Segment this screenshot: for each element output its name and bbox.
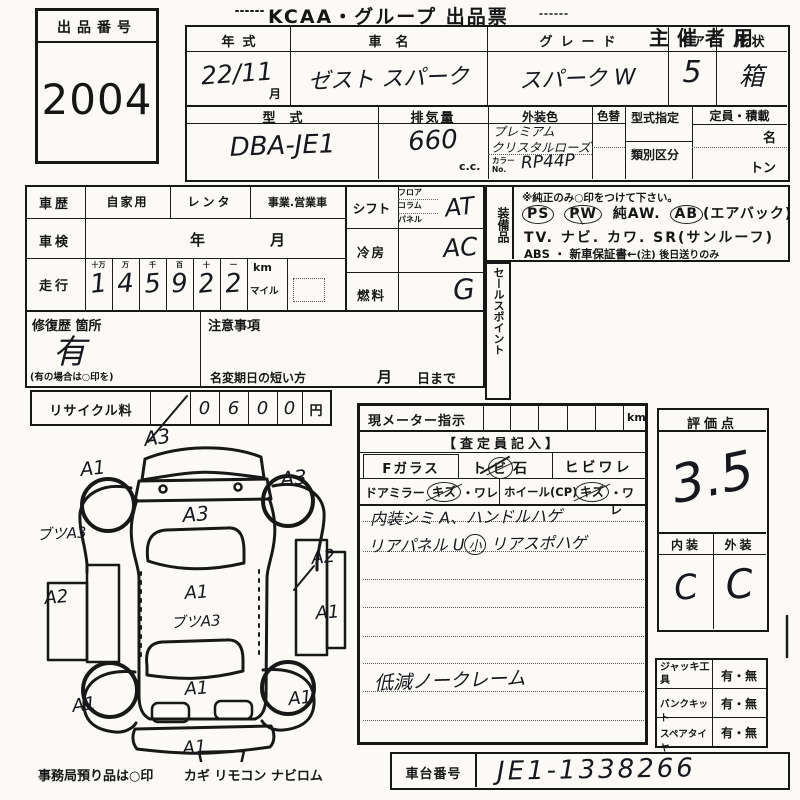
cooling-value: AC <box>442 232 479 263</box>
history-rental: レンタ <box>170 193 250 210</box>
divider <box>623 406 624 430</box>
fuel-label: 燃料 <box>345 285 398 304</box>
model-value: DBA-JE1 <box>187 128 379 165</box>
jack-value: 有・無 <box>712 667 766 684</box>
name-change-month: 月 <box>377 366 392 387</box>
capacity-label: 定員・積載 <box>692 107 787 124</box>
cooling-label: 冷房 <box>345 242 398 261</box>
mileage-digit-1: 4 <box>111 268 140 300</box>
wiper-pivot-left <box>160 486 167 493</box>
wheel-kizu: キズ <box>575 482 609 502</box>
divider <box>538 406 539 430</box>
auction-sheet: 出品番号 2004 KCAA・グループ 出品票 主催者用 年式 車名 グレード … <box>0 0 800 800</box>
divider <box>595 406 596 430</box>
mirror-kizu: キズ <box>427 482 461 502</box>
damage-label-13: A1 <box>181 736 207 759</box>
shift-positions: フロア コラム パネル <box>398 187 438 227</box>
doors-value: 5 <box>668 55 716 90</box>
vehicle-table: 年式 車名 グレード ドア 形状 22/11 月 ゼスト スパーク スパーク W… <box>185 25 790 182</box>
equipment-line3: ABS ・ 新車保証書←(注) 後日送りのみ <box>524 246 719 262</box>
puncture-kit-label: パンクキット <box>660 696 712 724</box>
divider <box>659 554 766 555</box>
divider <box>592 147 625 148</box>
damage-label-1: A1 <box>77 456 106 481</box>
mileage-checkbox <box>293 278 325 302</box>
damage-label-7: A1 <box>314 601 340 624</box>
puncture-kit-value: 有・無 <box>712 695 766 712</box>
color-no-value: RP44P <box>521 151 576 174</box>
divider <box>510 406 511 430</box>
name-change-label: 名変期日の短い方 <box>210 369 306 386</box>
repair-value: 有 <box>53 325 86 373</box>
type-designation-label: 型式指定 <box>631 109 679 126</box>
divider <box>363 636 644 637</box>
damage-label-6: A2 <box>309 546 336 569</box>
divider <box>25 258 345 259</box>
mileage-unit-mile: マイル <box>250 283 279 297</box>
spare-tire-value: 有・無 <box>712 724 766 741</box>
mileage-digit-0: 1 <box>84 268 114 301</box>
inspection-label: 車検 <box>25 231 85 250</box>
mileage-digit-4: 2 <box>192 268 222 301</box>
divider <box>363 720 644 721</box>
damage-label-4: ブツA3 <box>36 523 87 544</box>
side-panel-left-inner <box>87 565 119 662</box>
score-value: 3.5 <box>654 438 771 519</box>
damage-label-2: A3 <box>277 465 307 491</box>
equipment-line1: PS PW 純AW. AB(エアバック) <box>522 203 792 224</box>
year-label: 年式 <box>187 31 290 50</box>
classification-label: 類別区分 <box>631 146 679 163</box>
exhibit-number-value: 2004 <box>38 75 156 124</box>
divider <box>360 430 645 432</box>
rear-window-shape <box>147 640 243 678</box>
mileage-digit-2: 5 <box>138 268 168 300</box>
damage-label-9: ブツA3 <box>170 611 221 632</box>
exterior-label: 外装 <box>713 536 766 553</box>
damage-label-12: A1 <box>286 687 313 710</box>
front-bumper-shape <box>142 448 264 480</box>
mileage-label: 走行 <box>25 275 85 294</box>
exterior-grade: C <box>711 559 769 610</box>
divider <box>475 754 477 787</box>
damage-label-3: A3 <box>180 501 210 527</box>
wiper-pivot-right <box>235 484 242 491</box>
crack-cell: ヒビワレ <box>552 457 645 477</box>
damage-label-0: A3 <box>140 424 171 452</box>
equipment-line2: TV. ナビ. カワ. SR(サンルーフ) <box>524 227 774 247</box>
divider <box>363 579 644 580</box>
divider <box>692 147 787 148</box>
shift-value: AT <box>444 192 476 223</box>
sales-point-strip: セールスポイント <box>485 262 511 400</box>
equipment-aw: 純AW. <box>613 206 661 222</box>
equipment-ab: AB <box>670 205 704 224</box>
color-no-label: カラーNo. <box>492 156 515 174</box>
capacity-persons-unit: 名 <box>692 127 776 146</box>
divider <box>363 607 644 608</box>
divider <box>345 228 485 229</box>
office-keep-note: 事務局預り品は○印 <box>38 769 153 784</box>
accessories-box: ジャッキ工具 有・無 パンクキット 有・無 スペアタイヤ 有・無 <box>655 658 768 748</box>
caution-label: 注意事項 <box>208 315 260 334</box>
divider <box>499 478 500 504</box>
mirror-ware: ・ワレ <box>462 484 498 501</box>
assessor-header: 【査定員記入】 <box>360 433 645 452</box>
divider <box>692 124 787 125</box>
divider <box>483 406 484 430</box>
assessor-note-1: 内装シミ A、ハンドルハゲ <box>370 502 562 529</box>
mileage-digit-3: 9 <box>165 268 194 299</box>
divider <box>567 406 568 430</box>
history-label: 車歴 <box>25 193 85 212</box>
shape-value: 箱 <box>716 57 787 93</box>
windshield-shape <box>147 528 244 569</box>
cowl-shape <box>135 479 271 501</box>
sales-point-label: セールスポイント <box>490 267 506 395</box>
model-label: 型式 <box>187 107 378 126</box>
divider <box>287 258 288 310</box>
score-box: 評価点 3.5 内装 外装 C C <box>657 408 769 632</box>
inspection-month-unit: 月 <box>270 229 285 250</box>
status-table: 車歴 自家用 レンタ 事業.営業車 シフト フロア コラム パネル AT 車検 … <box>25 185 485 430</box>
grade-value: スパーク W <box>486 58 668 96</box>
mirror-label: ドアミラー <box>365 484 425 501</box>
equipment-box: 装備品 ※純正のみ○印をつけて下さい。 PS PW 純AW. AB(エアバック)… <box>485 185 790 262</box>
doors-label: ドア <box>668 31 716 50</box>
color-change-label: 色替 <box>592 108 625 124</box>
equipment-ps: PS <box>522 205 554 224</box>
assessment-box: 現メーター指示 km 【査定員記入】 Fガラス トビ石 ヒビワレ ドアミラー キ… <box>357 403 648 745</box>
damage-label-11: A1 <box>70 693 97 717</box>
divider <box>659 430 766 432</box>
car-name-value: ゼスト スパーク <box>290 58 488 97</box>
divider <box>625 141 692 142</box>
assessor-note-3: 低減ノークレーム <box>374 663 526 695</box>
fuel-value: G <box>452 272 476 306</box>
wheel-label: ホイール(CP) <box>504 484 577 500</box>
rear-light-right <box>215 701 252 719</box>
damage-label-10: A1 <box>183 677 209 700</box>
divider <box>360 452 645 453</box>
shift-label: シフト <box>345 198 398 217</box>
wheel-ware: ・ワレ <box>610 484 645 518</box>
damage-label-5: A2 <box>43 586 70 609</box>
history-business: 事業.営業車 <box>250 194 345 210</box>
repair-note: (有の場合は○印を) <box>30 369 113 383</box>
shape-label: 形状 <box>716 31 787 50</box>
chassis-label: 車台番号 <box>392 763 475 782</box>
exhibit-number-label: 出品番号 <box>38 11 156 43</box>
assessor-note-2: リアパネル U小 リアスポハゲ <box>368 529 587 557</box>
car-name-label: 車名 <box>290 31 487 50</box>
f-glass-cell: Fガラス <box>363 454 459 479</box>
equipment-label: 装備品 <box>487 187 514 259</box>
divider <box>625 105 626 179</box>
inspection-year-unit: 年 <box>190 229 205 250</box>
chassis-value: JE1-1338266 <box>497 753 696 786</box>
divider <box>25 218 345 219</box>
office-keep-items: カギ リモコン ナビロム <box>184 769 323 784</box>
chassis-box: 車台番号 JE1-1338266 <box>390 752 790 790</box>
equipment-ab-suffix: (エアバック) <box>703 206 792 222</box>
meter-label: 現メーター指示 <box>368 410 466 429</box>
capacity-load-unit: トン <box>692 157 776 176</box>
exhibit-number-box: 出品番号 2004 <box>35 8 159 164</box>
mileage-digit-5: 2 <box>219 268 248 300</box>
divider <box>247 258 248 310</box>
name-change-day: 日まで <box>417 368 456 387</box>
equipment-pw: PW <box>564 205 602 224</box>
interior-grade: C <box>656 564 715 611</box>
car-diagram: A3A1A3A3ブツA3A2A2A1A1ブツA3A1A1A1A1 <box>35 412 355 762</box>
interior-label: 内装 <box>659 536 713 553</box>
displacement-value: 660 <box>377 123 488 159</box>
spare-tire-label: スペアタイヤ <box>660 726 712 754</box>
footer-note: 事務局預り品は○印 カギ リモコン ナビロム <box>38 765 323 784</box>
divider <box>25 310 485 312</box>
jack-label: ジャッキ工具 <box>660 662 710 687</box>
displacement-unit: c.c. <box>459 160 480 173</box>
divider <box>200 310 201 388</box>
damage-label-8: A1 <box>183 581 209 604</box>
history-private: 自家用 <box>85 193 170 210</box>
mileage-unit-km: km <box>253 261 272 274</box>
grade-label: グレード <box>487 31 668 50</box>
meter-unit: km <box>627 411 646 424</box>
year-unit: 月 <box>269 85 281 102</box>
